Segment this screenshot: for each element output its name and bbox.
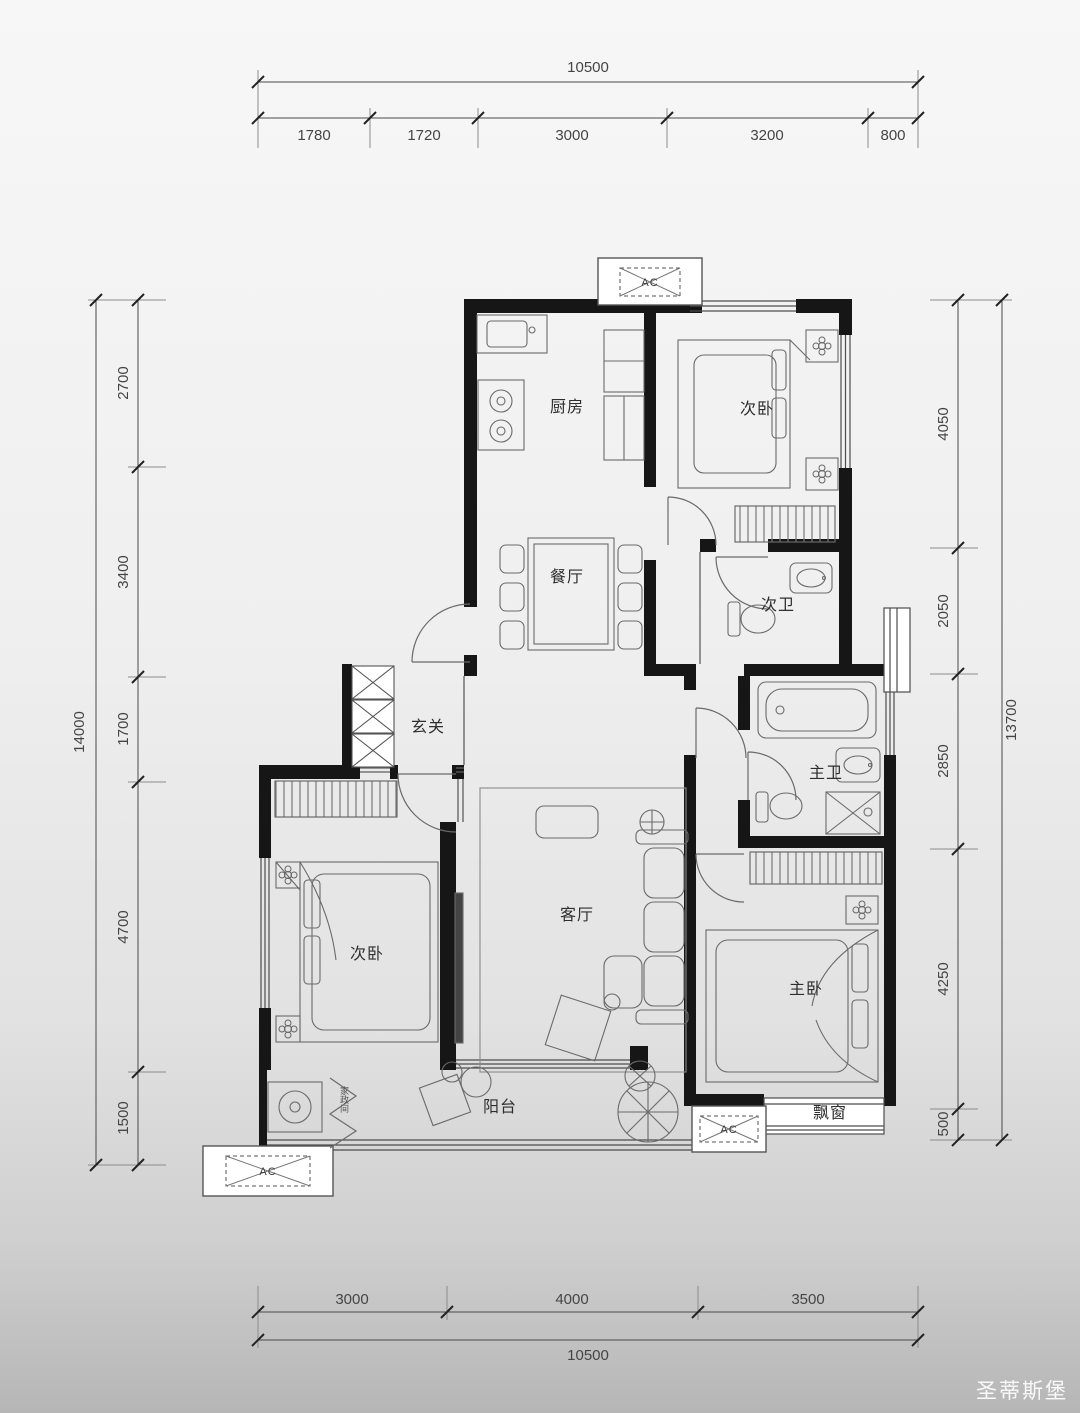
side-window [884,608,910,692]
label-foyer: 玄关 [411,718,445,736]
dim-right-total: 13700 [1003,699,1020,741]
dim-top-total: 10500 [567,59,609,76]
label-balcony: 阳台 [483,1098,517,1116]
dim-right-seg: 4250 [935,962,952,995]
dim-top-seg: 3200 [750,127,783,144]
laundry-items [268,1082,322,1132]
bedroom-master-furniture [706,852,882,1082]
label-bedroom-master: 主卧 [789,980,823,998]
shaft [352,666,394,767]
kitchen-fixtures [477,315,644,460]
dining-set [500,538,642,650]
dim-labels-left: 14000 2700 3400 1700 4700 1500 [71,366,132,1134]
dim-bottom-seg: 3000 [335,1291,368,1308]
dim-labels-bottom: 3000 4000 3500 10500 [335,1291,824,1364]
dim-top-seg: 1780 [297,127,330,144]
window-bath-right [886,690,894,755]
dim-labels-top: 10500 1780 1720 3000 3200 800 [297,59,905,144]
label-bath-master: 主卫 [809,764,843,782]
window-balcony-door [456,1060,630,1068]
label-kitchen: 厨房 [550,398,584,416]
label-dining: 餐厅 [550,568,584,586]
label-laundry: 家政间 [339,1085,349,1114]
window-bedroom-left [261,858,269,1008]
dim-left-seg: 3400 [115,555,132,588]
floorplan-page: AC AC AC [0,0,1080,1413]
ac-unit-bottom-center: AC [692,1106,766,1152]
watermark: 圣蒂斯堡 [976,1375,1068,1405]
label-bay-window: 飘窗 [813,1104,847,1122]
dim-right-seg: 4050 [935,407,952,440]
dim-left-seg: 2700 [115,366,132,399]
dim-top-seg: 3000 [555,127,588,144]
dim-labels-right: 4050 2050 2850 4250 500 13700 [935,407,1020,1136]
ac-label-top: AC [641,277,658,289]
dim-top-seg: 1720 [407,127,440,144]
dim-left-seg: 4700 [115,910,132,943]
dim-right-seg: 2850 [935,744,952,777]
label-bedroom-top: 次卧 [740,400,774,418]
bedroom-top-furniture [678,330,838,542]
balcony-items [419,1061,678,1142]
window-bedroom-top-right [841,335,850,468]
label-bath2: 次卫 [761,596,795,614]
dim-bottom-seg: 3500 [791,1291,824,1308]
label-bedroom-left: 次卧 [350,945,384,963]
ac-unit-top: AC [598,258,702,305]
ac-unit-bottom-left: AC [203,1146,333,1196]
dim-bottom-seg: 4000 [555,1291,588,1308]
dim-right-seg: 2050 [935,594,952,627]
ac-label-bottom-center: AC [720,1124,737,1136]
bath-master-fixtures [756,682,880,834]
living-furniture [455,788,688,1072]
door-bedroom-top [668,497,716,545]
window-bedroom-top [690,301,796,311]
door-dining [412,604,470,662]
dim-left-seg: 1700 [115,712,132,745]
dim-right-seg: 500 [935,1111,952,1136]
label-living: 客厅 [560,906,594,924]
door-bedroom-master [696,854,744,902]
dim-top-seg: 800 [880,127,905,144]
dim-bottom-total: 10500 [567,1347,609,1364]
bedroom-left-furniture [275,781,438,1042]
floorplan-drawing: AC AC AC [0,0,1080,1413]
ac-label-bottom-left: AC [259,1166,276,1178]
dim-left-total: 14000 [71,711,88,753]
dim-left-seg: 1500 [115,1101,132,1134]
